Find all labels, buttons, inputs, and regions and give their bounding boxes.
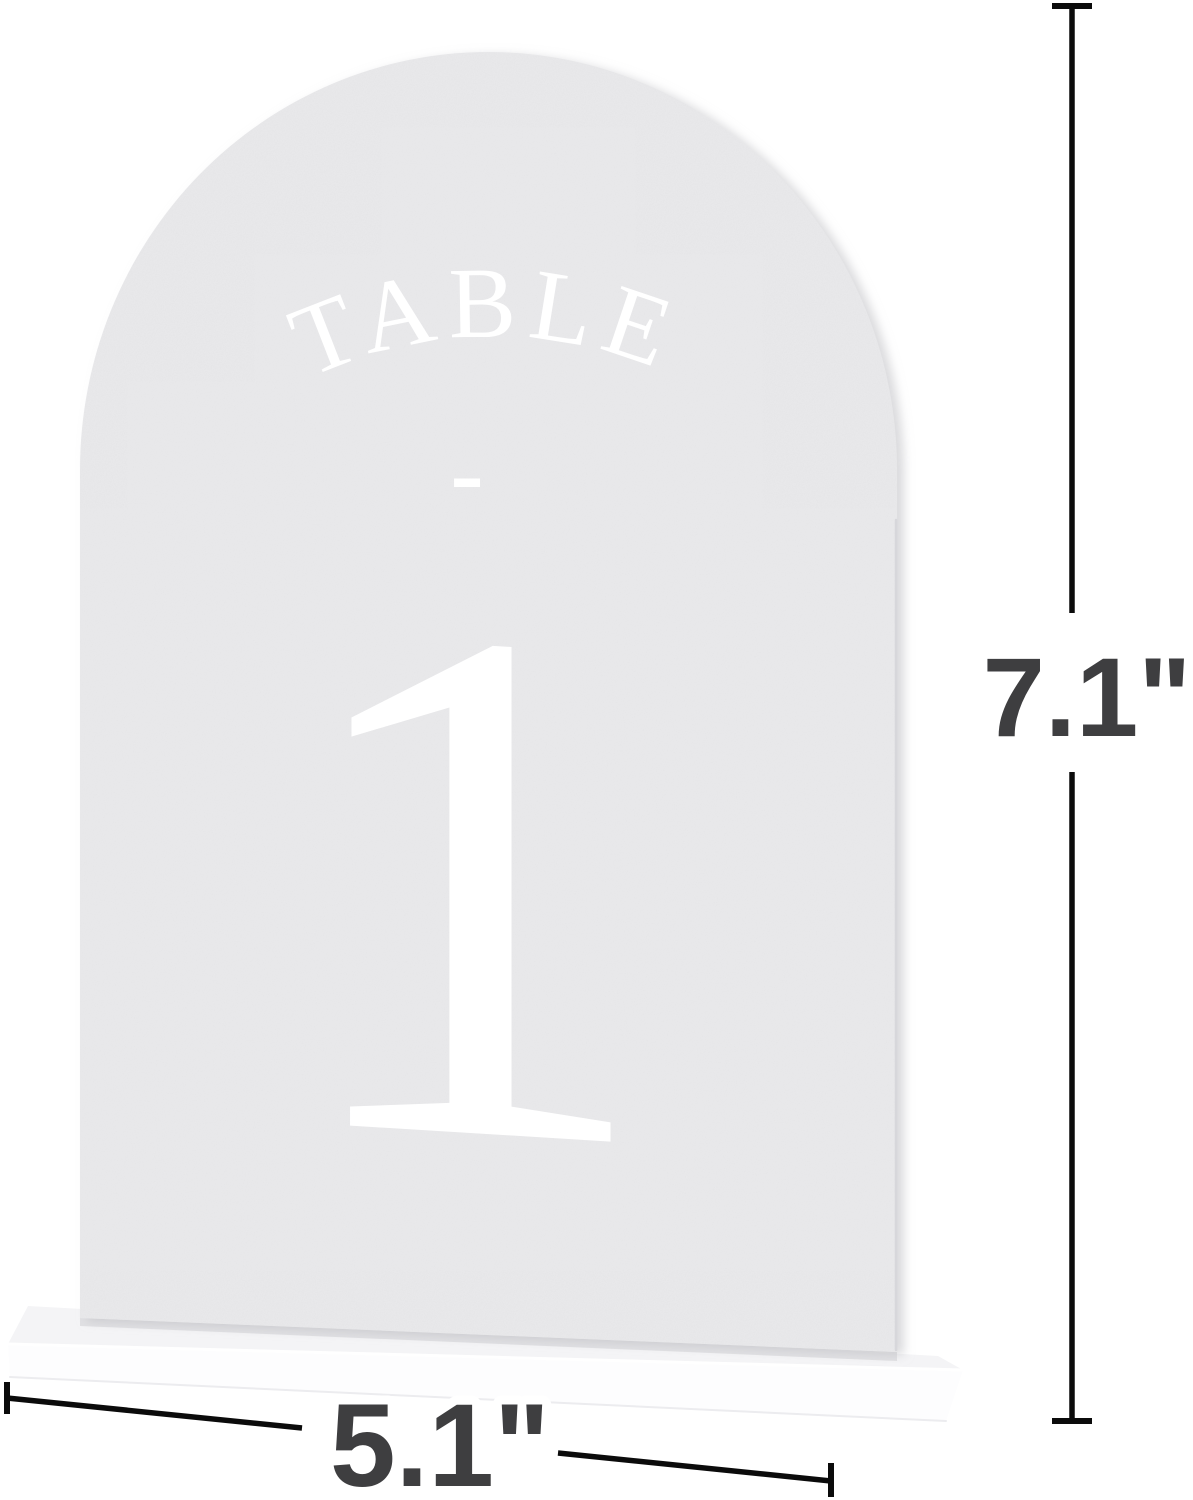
sign-table-number: 1 — [285, 463, 655, 1305]
screenshot-root: TABLE - 1 7.1" 5.1" — [0, 0, 1193, 1500]
width-dimension-label: 5.1" — [330, 1380, 550, 1500]
width-line-right — [558, 1453, 831, 1481]
table-number-sign: TABLE - 1 — [8, 30, 963, 1421]
product-dimension-diagram: TABLE - 1 7.1" 5.1" — [0, 0, 1193, 1500]
height-dimension-label: 7.1" — [983, 635, 1192, 760]
width-line-left — [7, 1398, 302, 1428]
